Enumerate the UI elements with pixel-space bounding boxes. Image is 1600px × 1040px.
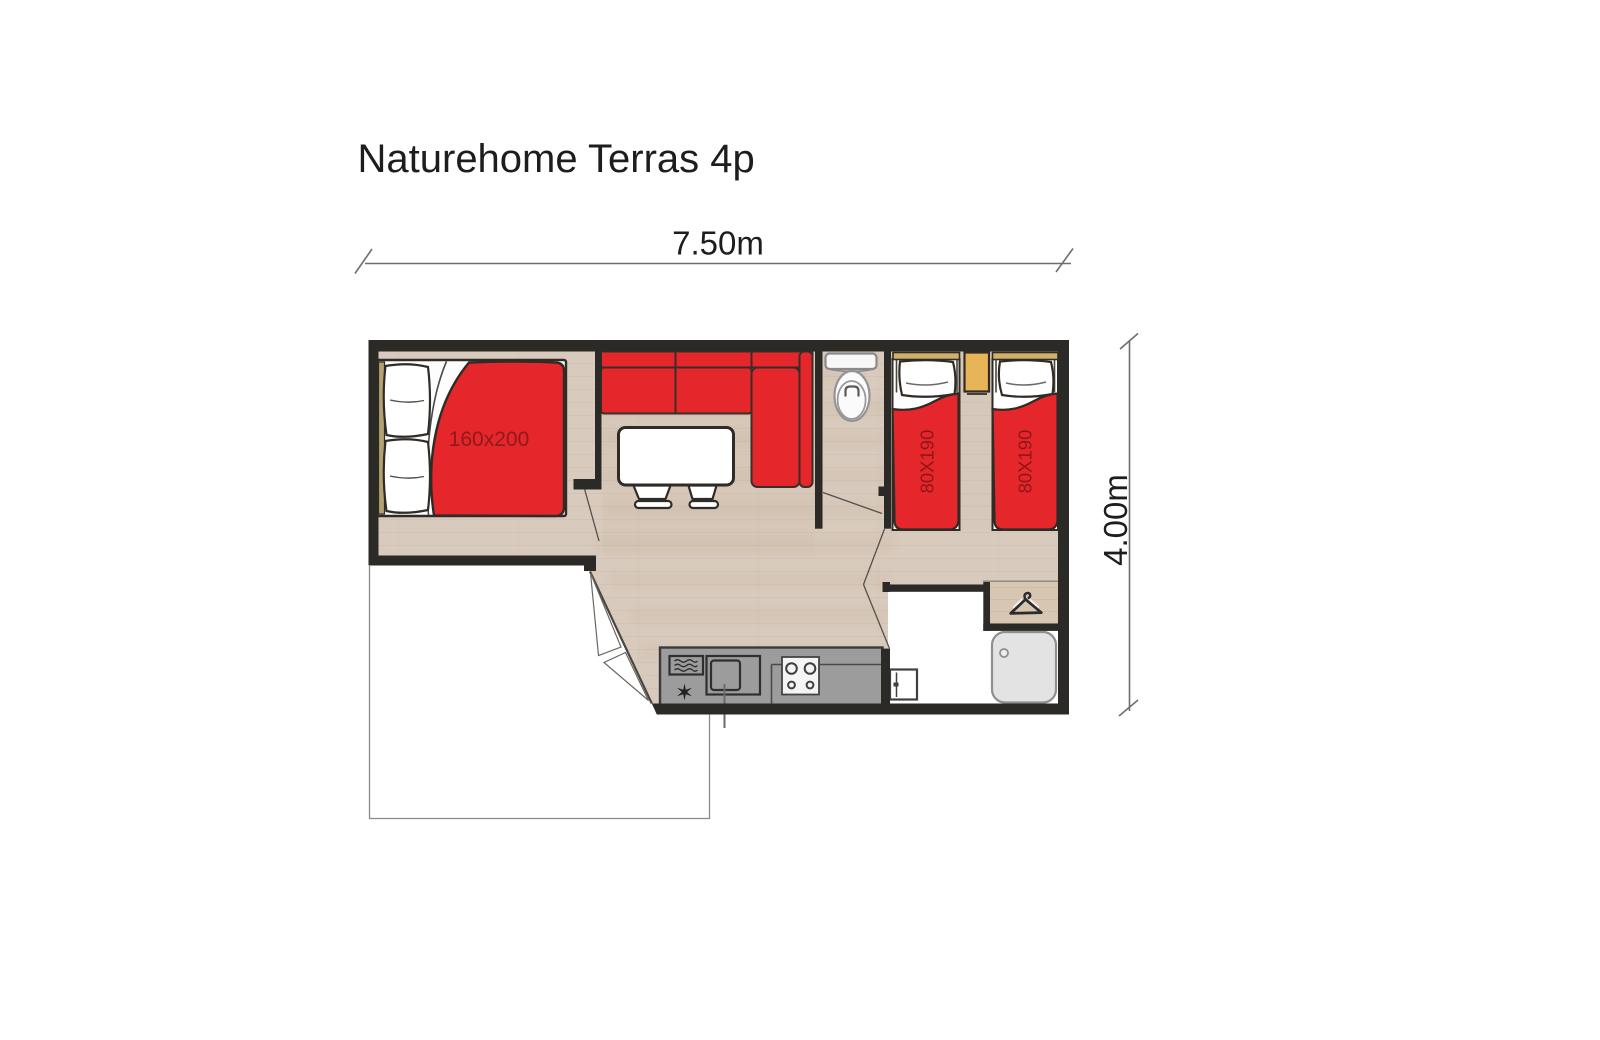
svg-text:Naturehome Terras 4p: Naturehome Terras 4p: [358, 137, 755, 181]
svg-text:4.00m: 4.00m: [1097, 474, 1134, 566]
svg-text:160x200: 160x200: [449, 428, 530, 451]
svg-text:80X190: 80X190: [1015, 430, 1036, 494]
svg-text:7.50m: 7.50m: [672, 225, 764, 262]
svg-text:80X190: 80X190: [917, 430, 938, 494]
